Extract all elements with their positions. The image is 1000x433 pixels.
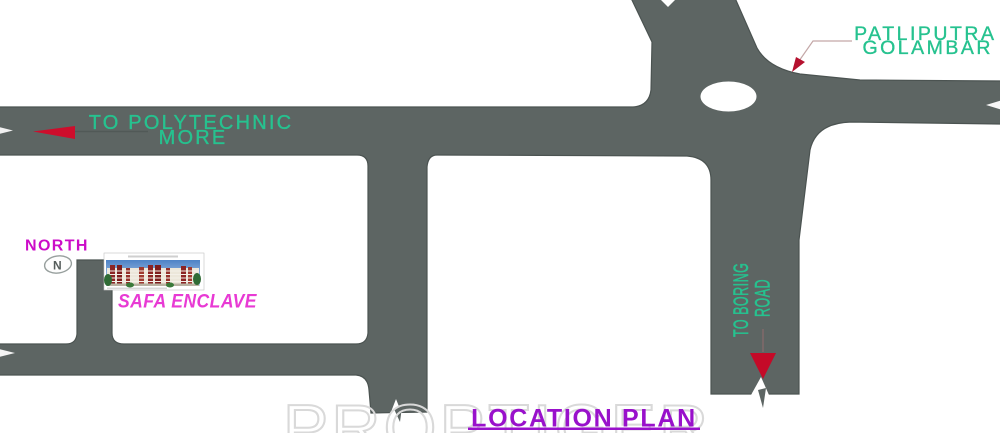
svg-text:NORTH: NORTH [25, 238, 89, 255]
svg-text:GOLAMBAR: GOLAMBAR [862, 37, 993, 59]
svg-text:N: N [53, 259, 62, 273]
svg-text:SAFA ENCLAVE: SAFA ENCLAVE [118, 290, 257, 312]
svg-text:ROAD: ROAD [750, 279, 774, 317]
svg-text:MORE: MORE [159, 127, 228, 149]
